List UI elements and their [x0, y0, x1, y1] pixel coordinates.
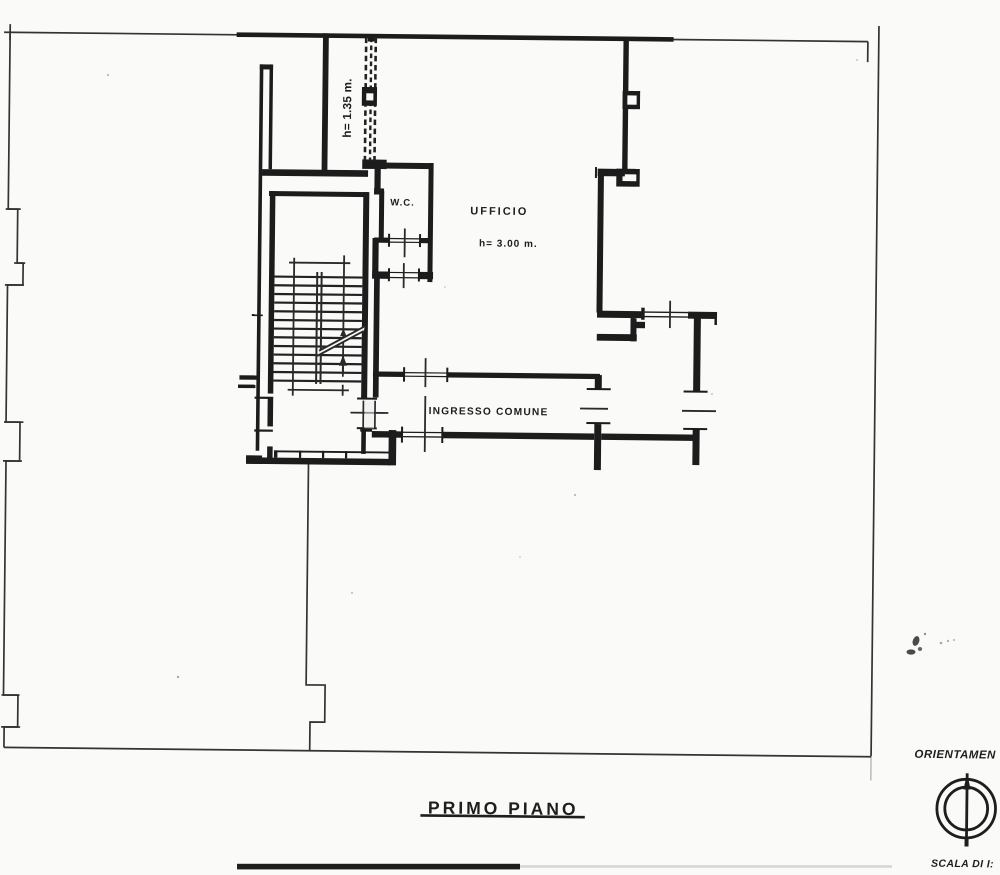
- svg-text:SCALA DI I:: SCALA DI I:: [931, 858, 994, 871]
- svg-text:W.C.: W.C.: [390, 197, 415, 208]
- svg-text:h= 3.00 m.: h= 3.00 m.: [479, 238, 538, 250]
- svg-text:INGRESSO COMUNE: INGRESSO COMUNE: [429, 406, 549, 418]
- svg-text:UFFICIO: UFFICIO: [470, 205, 528, 218]
- svg-text:ORIENTAMEN: ORIENTAMEN: [914, 749, 996, 762]
- svg-text:h= 1.35 m.: h= 1.35 m.: [340, 78, 355, 138]
